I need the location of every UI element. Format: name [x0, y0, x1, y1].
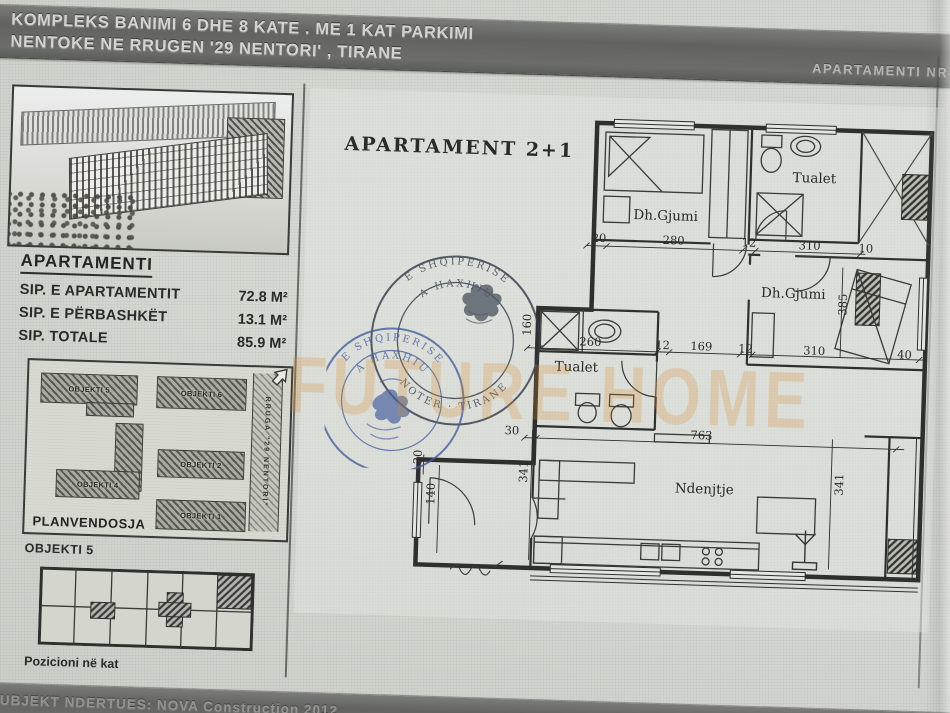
- nightstand-icon: [603, 196, 630, 223]
- site-plan: OBJEKTI 5 OBJEKTI 6 OBJEKTI 2 OBJEKTI 4 …: [22, 358, 293, 542]
- apartment-info-block: APARTAMENTI SIP. E APARTAMENTIT 72.8 M² …: [18, 251, 289, 359]
- dim-label: 12: [738, 341, 753, 355]
- dim-label: 763: [690, 428, 712, 443]
- floor-position-diagram: [38, 567, 255, 652]
- building-footprint-objekti2: OBJEKTI 2: [157, 449, 245, 480]
- dim-label: 40: [897, 347, 912, 361]
- stamp-inner-text: NOTER · TIRANE: [396, 377, 510, 415]
- building-label: OBJEKTI 6: [181, 388, 223, 398]
- building-footprint-objekti5-wing: [86, 402, 134, 418]
- dim-label: 140: [423, 483, 438, 505]
- svg-text:A HAXHIU: A HAXHIU: [353, 349, 431, 378]
- photographed-floorplan-document: KOMPLEKS BANIMI 6 DHE 8 KATE . ME 1 KAT …: [0, 0, 950, 713]
- info-value: 72.8 M²: [238, 289, 288, 307]
- floorplan-area: APARTAMENT 2+1: [294, 88, 945, 633]
- door-arc: [621, 361, 657, 397]
- svg-text:E SHQIPERISE: E SHQIPERISE: [340, 331, 447, 367]
- room-label-bedroom2: Dh.Gjumi: [761, 285, 827, 303]
- room-label-bath1: Tualet: [792, 170, 837, 187]
- header-band: KOMPLEKS BANIMI 6 DHE 8 KATE . ME 1 KAT …: [0, 3, 950, 89]
- sofa-icon: [539, 460, 635, 483]
- object-label: OBJEKTI 5: [24, 541, 94, 557]
- building-footprint-objekti5: OBJEKTI 5: [40, 372, 138, 405]
- room-label-bath2: Tualet: [554, 359, 599, 376]
- north-arrow-icon: [267, 364, 294, 391]
- apartment-info-heading: APARTAMENTI: [20, 251, 153, 278]
- hatched-column: [901, 174, 928, 220]
- notary-stamps: E SHQIPERISE A HAXHIU NOTER · TIRANE E S…: [323, 237, 550, 474]
- info-row: SIP. TOTALE 85.9 M²: [18, 328, 286, 352]
- fridge-icon: [533, 536, 562, 564]
- dim-label: 12: [655, 338, 670, 352]
- dim-label: 10: [858, 241, 873, 255]
- sidebar: APARTAMENTI SIP. E APARTAMENTIT 72.8 M² …: [0, 80, 300, 695]
- interior-walls: [530, 121, 932, 580]
- building-label: OBJEKTI 1: [180, 510, 222, 520]
- bidet-tank-icon: [575, 393, 599, 406]
- sink-icon: [790, 136, 821, 157]
- info-label: SIP. E PËRBASHKËT: [19, 305, 168, 326]
- info-row: SIP. E APARTAMENTIT 72.8 M²: [20, 282, 288, 306]
- dim-label: 385: [835, 293, 850, 315]
- render-trees: [7, 190, 137, 250]
- info-label: SIP. E APARTAMENTIT: [20, 282, 181, 303]
- info-value: 13.1 M²: [238, 312, 288, 330]
- info-row: SIP. E PËRBASHKËT 13.1 M²: [19, 305, 287, 329]
- building-label: OBJEKTI 4: [77, 479, 119, 489]
- building-label: OBJEKTI 2: [180, 459, 222, 469]
- footer-builder-text: SUBJEKT NDERTUES: NOVA Construction 2012: [0, 692, 338, 713]
- info-label: SIP. TOTALE: [18, 328, 108, 347]
- dim-label: 12: [741, 235, 756, 249]
- position-caption: Pozicioni në kat: [24, 654, 119, 671]
- room-label-living: Ndenjtje: [675, 480, 734, 498]
- dim-label: 260: [579, 334, 601, 349]
- siteplan-caption: PLANVENDOSJA: [32, 513, 145, 532]
- dim-label: 310: [803, 343, 825, 358]
- stove-burner-icon: [702, 548, 709, 555]
- notary-stamp-2: E SHQIPERISE A HAXHIU: [323, 326, 465, 473]
- document-sheet: KOMPLEKS BANIMI 6 DHE 8 KATE . ME 1 KAT …: [0, 0, 950, 713]
- building-3d-render: [7, 84, 294, 255]
- building-footprint-objekti6: OBJEKTI 6: [156, 376, 247, 411]
- stamp-name-text: A HAXHIU: [353, 349, 431, 378]
- building-label: OBJEKTI 5: [68, 384, 110, 394]
- dim-label: 169: [690, 339, 712, 354]
- desk-icon: [751, 313, 774, 358]
- highlighted-apartment-cell: [217, 575, 252, 609]
- toilet-tank-icon: [762, 135, 782, 148]
- toilet-icon: [611, 404, 632, 427]
- info-value: 85.9 M²: [237, 335, 287, 353]
- svg-text:NOTER · TIRANE: NOTER · TIRANE: [396, 377, 510, 415]
- dim-label: 341: [832, 473, 847, 495]
- eagle-scribble-icon: [372, 389, 410, 424]
- toilet-icon: [761, 148, 782, 173]
- table-icon: [757, 497, 816, 535]
- room-label-bedroom1: Dh.Gjumi: [633, 207, 699, 225]
- dim-label: 280: [662, 233, 684, 248]
- road-label: RRUGA "29 NENTORI": [261, 397, 271, 508]
- dim-label: 310: [798, 238, 820, 253]
- dim-label: 20: [591, 231, 606, 245]
- stamp-outer-text: E SHQIPERISE: [340, 331, 447, 367]
- building-footprint-objekti4: OBJEKTI 4: [55, 469, 140, 500]
- building-footprint-objekti1: OBJEKTI 1: [155, 499, 246, 532]
- road-strip: RRUGA "29 NENTORI": [248, 373, 283, 532]
- plant-icon: [792, 530, 817, 570]
- header-apartment-number-label: APARTAMENTI NR: [812, 61, 948, 80]
